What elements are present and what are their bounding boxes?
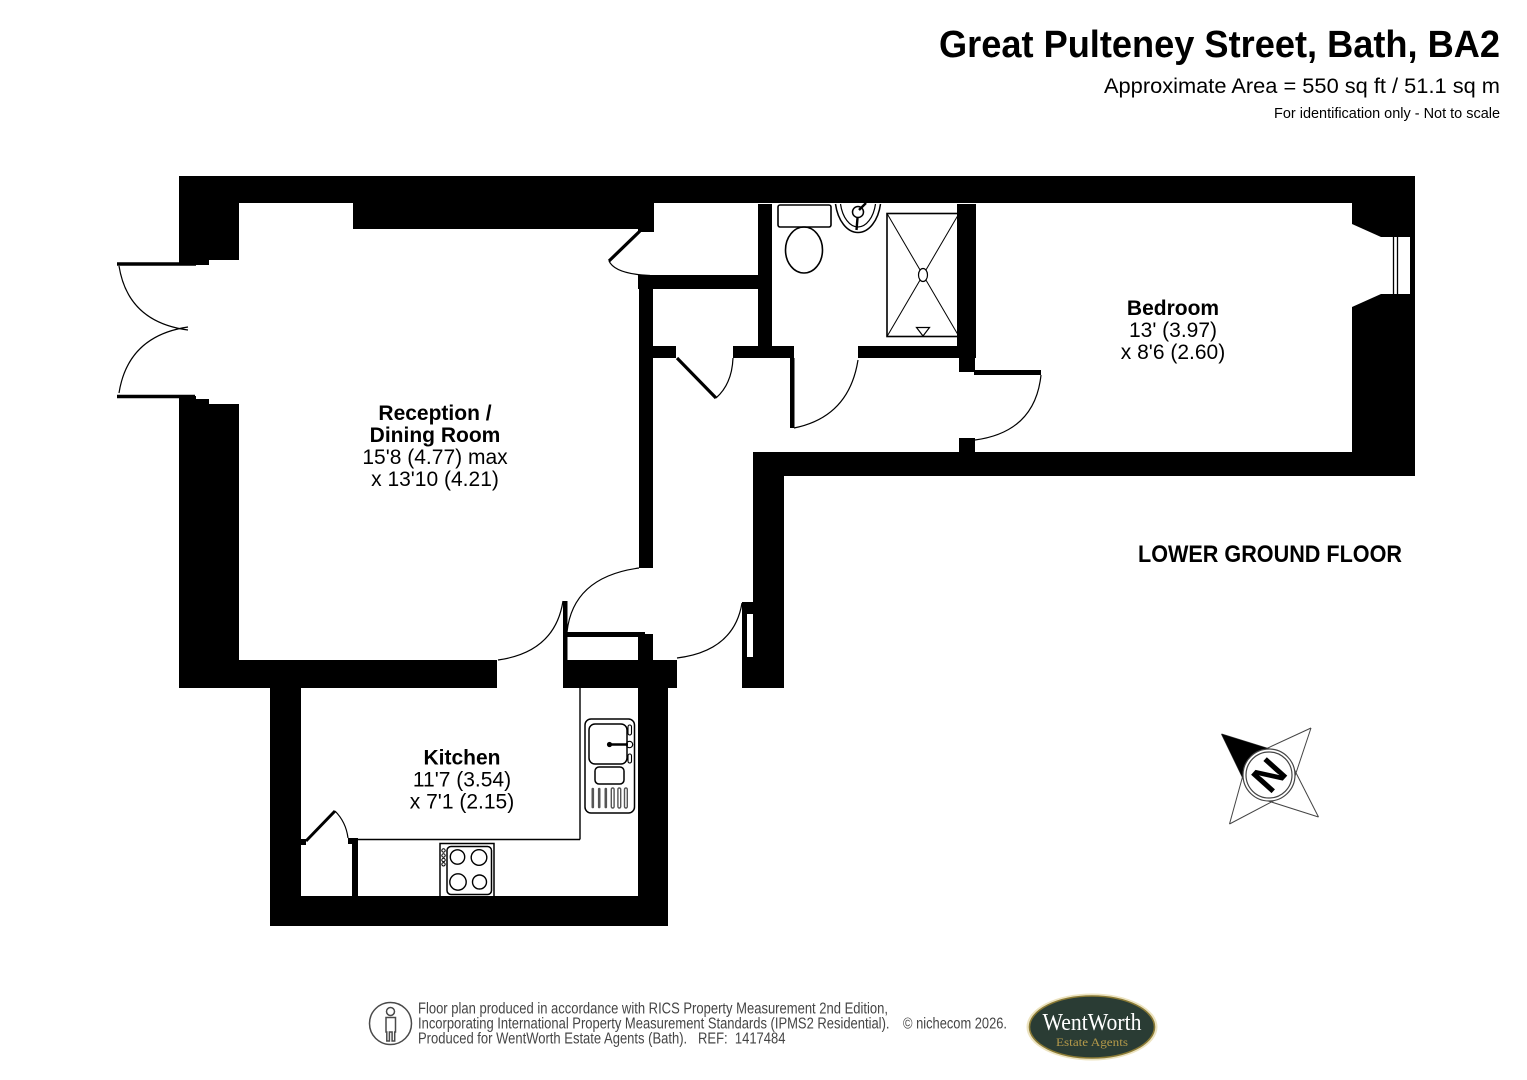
svg-text:Estate Agents: Estate Agents xyxy=(1056,1035,1128,1049)
svg-text:Approximate Area = 550 sq ft /: Approximate Area = 550 sq ft / 51.1 sq m xyxy=(1104,75,1500,98)
svg-text:Bedroom: Bedroom xyxy=(1127,297,1219,320)
svg-text:Kitchen: Kitchen xyxy=(423,747,500,770)
svg-text:Great Pulteney Street, Bath, B: Great Pulteney Street, Bath, BA2 xyxy=(939,24,1500,66)
svg-text:x 13'10 (4.21): x 13'10 (4.21) xyxy=(371,468,499,491)
svg-text:For identification only - Not: For identification only - Not to scale xyxy=(1274,105,1500,122)
svg-text:LOWER GROUND FLOOR: LOWER GROUND FLOOR xyxy=(1138,541,1402,568)
svg-text:Produced for WentWorth Estate: Produced for WentWorth Estate Agents (Ba… xyxy=(418,1031,786,1048)
svg-text:x 8'6 (2.60): x 8'6 (2.60) xyxy=(1121,341,1225,364)
svg-text:11'7 (3.54): 11'7 (3.54) xyxy=(413,769,511,792)
svg-text:Reception /: Reception / xyxy=(378,402,491,425)
svg-text:15'8 (4.77) max: 15'8 (4.77) max xyxy=(362,446,508,469)
svg-text:Dining Room: Dining Room xyxy=(370,424,501,447)
svg-text:© nichecom 2026.: © nichecom 2026. xyxy=(903,1016,1007,1033)
svg-text:x 7'1 (2.15): x 7'1 (2.15) xyxy=(410,791,514,814)
svg-text:WentWorth: WentWorth xyxy=(1043,1010,1142,1036)
svg-text:13' (3.97): 13' (3.97) xyxy=(1129,319,1217,342)
